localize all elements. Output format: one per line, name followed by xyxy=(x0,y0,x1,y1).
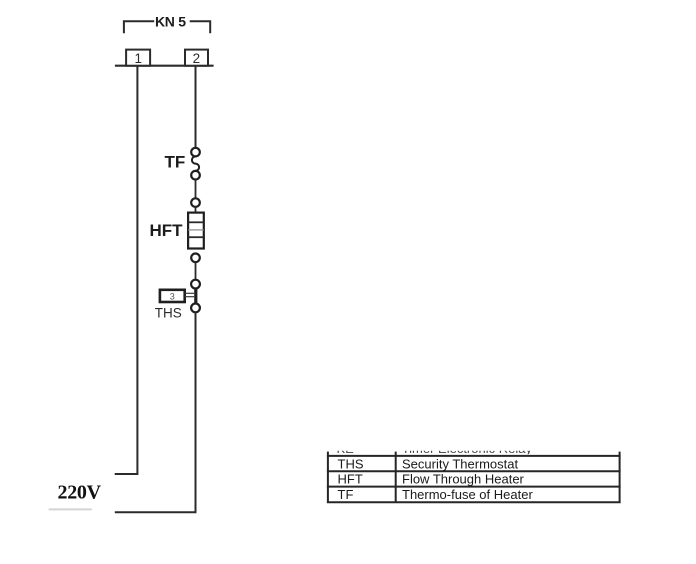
svg-text:KE: KE xyxy=(337,441,355,456)
svg-text:TF: TF xyxy=(338,487,354,502)
svg-text:HFT: HFT xyxy=(150,221,184,240)
svg-text:Security Thermostat: Security Thermostat xyxy=(402,456,518,471)
svg-text:TF: TF xyxy=(165,153,186,172)
svg-text:3: 3 xyxy=(170,291,175,301)
svg-text:THS: THS xyxy=(155,306,182,321)
svg-text:THS: THS xyxy=(338,456,364,471)
svg-text:Flow Through Heater: Flow Through Heater xyxy=(402,472,525,487)
svg-text:HFT: HFT xyxy=(338,472,363,487)
svg-text:1: 1 xyxy=(135,51,143,66)
svg-text:2: 2 xyxy=(193,51,201,66)
svg-text:220V: 220V xyxy=(58,481,102,503)
svg-text:Timer Electronic Relay: Timer Electronic Relay xyxy=(402,441,533,456)
svg-text:Thermo-fuse of Heater: Thermo-fuse of Heater xyxy=(402,487,533,502)
svg-text:KN 5: KN 5 xyxy=(155,14,186,30)
